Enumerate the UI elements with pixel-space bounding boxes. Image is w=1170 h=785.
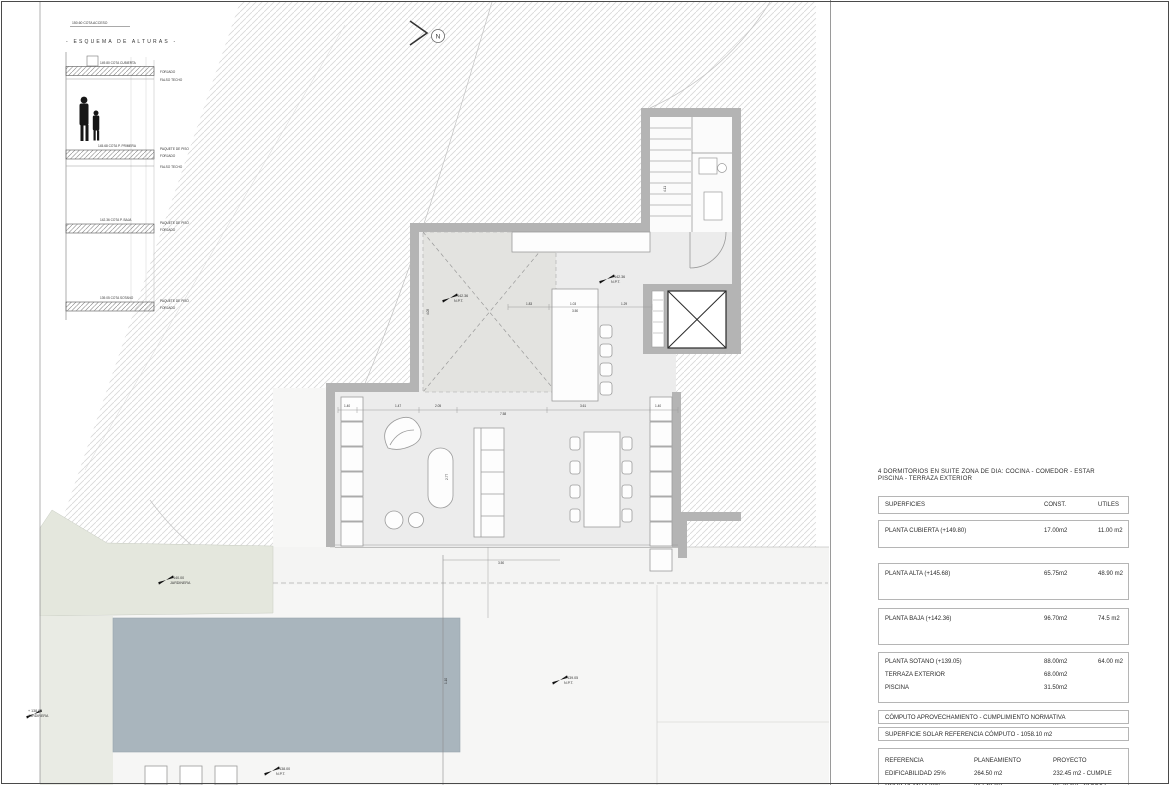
program-text: 4 DORMITORIOS EN SUITE ZONA DE DIA: COCI… bbox=[878, 469, 1148, 483]
dim-label: 1.47 bbox=[395, 404, 401, 408]
level-value: + 140.00 bbox=[170, 576, 184, 580]
dim-label: 4.05 bbox=[426, 309, 430, 315]
pouf bbox=[409, 513, 424, 528]
shelves-right bbox=[650, 397, 672, 571]
side-label: PAQUETE DE PISO bbox=[160, 299, 189, 303]
side-label: FORJADO bbox=[160, 154, 176, 158]
level-value: + 139.05 bbox=[564, 676, 578, 680]
row-label: PISCINA bbox=[885, 685, 909, 692]
dim-label: 1.29 bbox=[621, 302, 627, 306]
computo-title: CÓMPUTO APROVECHAMIENTO - CUMPLIMIENTO N… bbox=[885, 715, 1065, 722]
surfaces-header-label: SUPERFICIES bbox=[885, 502, 925, 509]
row-const: 68.00m2 bbox=[1044, 672, 1067, 679]
side-label: FORJADO bbox=[160, 228, 176, 232]
surfaces-row-cubierta: PLANTA CUBIERTA (+149.80) 17.00m2 11.00 … bbox=[878, 520, 1129, 548]
program-line-2: PISCINA - TERRAZA EXTERIOR bbox=[878, 476, 1148, 483]
schema-title: - ESQUEMA DE ALTURAS - bbox=[66, 39, 177, 45]
side-label: FALSO TECHO bbox=[160, 165, 183, 169]
level-label: 145.68 COTA P. PRIMERA bbox=[98, 144, 137, 148]
row-const: 88.00m2 bbox=[1044, 659, 1067, 666]
row-const: 31.50m2 bbox=[1044, 685, 1067, 692]
computo-title-box: CÓMPUTO APROVECHAMIENTO - CUMPLIMIENTO N… bbox=[878, 710, 1129, 724]
surfaces-row-alta: PLANTA ALTA (+145.68) 65.75m2 48.90 m2 bbox=[878, 563, 1129, 600]
row-utiles: 64.00 m2 bbox=[1098, 659, 1123, 666]
computo-solar: SUPERFICIE SOLAR REFERENCIA CÓMPUTO - 10… bbox=[885, 732, 1052, 739]
elevator-shaft bbox=[652, 291, 726, 348]
access-label: 150.60 COTA ACCESO bbox=[72, 21, 108, 25]
dim-label: 7.58 bbox=[500, 412, 506, 416]
level-sub: JARDINERA bbox=[170, 581, 191, 585]
row-label: PLANTA SOTANO (+139.05) bbox=[885, 659, 962, 666]
dim-label: 3.50 bbox=[498, 561, 504, 565]
row-const: 17.00m2 bbox=[1044, 528, 1067, 535]
ref-label: EDIFICABILIDAD 25% bbox=[885, 771, 946, 778]
dim-label: 3.50 bbox=[572, 309, 578, 313]
pouf bbox=[385, 511, 403, 529]
side-label: FALSO TECHO bbox=[160, 78, 183, 82]
surfaces-row-sotano: PLANTA SOTANO (+139.05) 88.00m2 64.00 m2… bbox=[878, 652, 1129, 703]
level-sub: N.P.T. bbox=[454, 299, 464, 303]
row-const: 96.70m2 bbox=[1044, 616, 1067, 623]
summary-panel: 4 DORMITORIOS EN SUITE ZONA DE DIA: COCI… bbox=[830, 0, 1169, 785]
level-label: 139.05 COTA SOTANO bbox=[100, 296, 134, 300]
surfaces-header-const: CONST. bbox=[1044, 502, 1066, 509]
level-value: + 142.36 bbox=[454, 294, 468, 298]
surfaces-row-baja: PLANTA BAJA (+142.36) 96.70m2 74.5 m2 bbox=[878, 608, 1129, 645]
row-label: TERRAZA EXTERIOR bbox=[885, 672, 945, 679]
row-utiles: 11.00 m2 bbox=[1098, 528, 1123, 535]
side-label: FORJADO bbox=[160, 70, 176, 74]
dim-label: 4.11 bbox=[663, 186, 667, 192]
dining-table bbox=[584, 432, 620, 527]
void-area bbox=[423, 232, 556, 392]
row-label: PLANTA CUBIERTA (+149.80) bbox=[885, 528, 966, 535]
dim-label: 1.40 bbox=[344, 404, 350, 408]
side-label: PAQUETE DE PISO bbox=[160, 147, 189, 151]
level-sub: JARDINERA bbox=[28, 714, 49, 718]
planters bbox=[145, 766, 237, 785]
dim-label: 2.77 bbox=[445, 474, 449, 480]
people-silhouette bbox=[80, 97, 100, 141]
ref-header: PROYECTO bbox=[1053, 758, 1087, 765]
row-utiles: 74.5 m2 bbox=[1098, 616, 1120, 623]
surfaces-header: SUPERFICIES CONST. UTILES bbox=[878, 496, 1129, 514]
west-patio bbox=[273, 388, 330, 548]
ref-header: PLANEAMIENTO bbox=[974, 758, 1021, 765]
level-sub: N.P.T. bbox=[611, 280, 621, 284]
level-value: + 138.00 bbox=[276, 767, 290, 771]
side-label: FORJADO bbox=[160, 306, 176, 310]
program-line-1: 4 DORMITORIOS EN SUITE ZONA DE DIA: COCI… bbox=[878, 469, 1148, 476]
reference-table: REFERENCIA PLANEAMIENTO PROYECTO EDIFICA… bbox=[878, 748, 1129, 785]
ref-proj: 232.45 m2 - CUMPLE bbox=[1053, 771, 1112, 778]
ref-header: REFERENCIA bbox=[885, 758, 924, 765]
coffee-table-oval bbox=[428, 448, 453, 508]
level-sub: N.P.T. bbox=[276, 772, 286, 776]
dim-label: 1.83 bbox=[526, 302, 532, 306]
north-label: N bbox=[436, 34, 441, 41]
side-label: PAQUETE DE PISO bbox=[160, 221, 189, 225]
row-const: 65.75m2 bbox=[1044, 571, 1067, 578]
ref-plan: 264.50 m2 bbox=[974, 771, 1002, 778]
row-label: PLANTA ALTA (+145.68) bbox=[885, 571, 950, 578]
drawing-sheet: 1.40 1.47 2.05 3.61 1.40 7.58 1.83 1.03 … bbox=[0, 0, 1170, 785]
level-label: 142.36 COTA P. BAJA bbox=[100, 218, 132, 222]
level-label: 149.80 COTA CUBIERTA bbox=[100, 61, 137, 65]
sofa bbox=[474, 428, 504, 537]
row-utiles: 48.90 m2 bbox=[1098, 571, 1123, 578]
terrace-band bbox=[273, 547, 829, 585]
surfaces-header-utiles: UTILES bbox=[1098, 502, 1119, 509]
dim-label: 2.05 bbox=[435, 404, 441, 408]
dim-label: 1.10 bbox=[444, 678, 448, 684]
dim-label: 3.61 bbox=[580, 404, 586, 408]
jardinera-left-strip bbox=[40, 616, 113, 785]
level-sub: N.P.T. bbox=[564, 681, 574, 685]
kitchen-counter bbox=[512, 232, 650, 252]
computo-solar-box: SUPERFICIE SOLAR REFERENCIA CÓMPUTO - 10… bbox=[878, 727, 1129, 741]
dim-label: 1.40 bbox=[655, 404, 661, 408]
row-label: PLANTA BAJA (+142.36) bbox=[885, 616, 951, 623]
level-value: + 142.36 bbox=[611, 275, 625, 279]
pool bbox=[113, 618, 460, 752]
dim-label: 1.03 bbox=[570, 302, 576, 306]
